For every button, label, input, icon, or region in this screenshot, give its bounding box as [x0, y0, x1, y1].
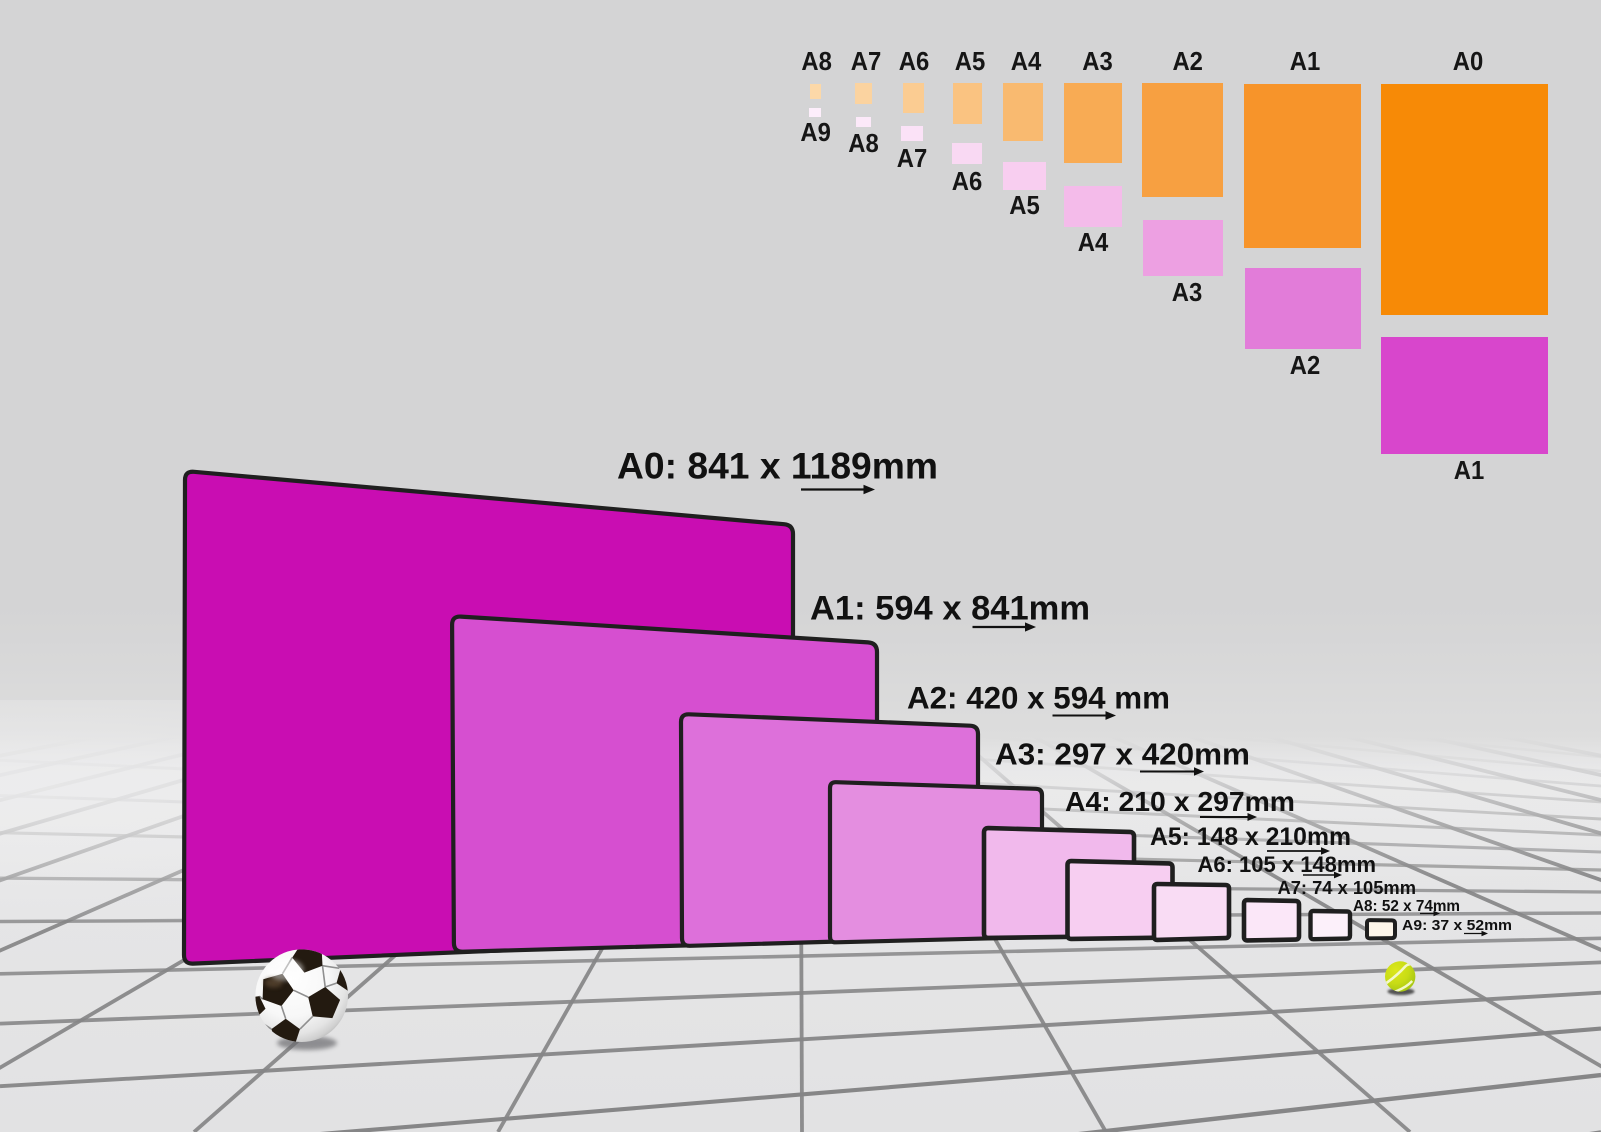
- svg-text:A8: A8: [801, 46, 832, 76]
- svg-text:A5: 148 x 210mm: A5: 148 x 210mm: [1150, 824, 1351, 851]
- svg-text:A3: A3: [1172, 277, 1203, 307]
- svg-text:A6: 105 x 148mm: A6: 105 x 148mm: [1198, 852, 1377, 877]
- svg-text:A4: 210 x 297mm: A4: 210 x 297mm: [1065, 785, 1295, 817]
- svg-text:A1: A1: [1290, 46, 1321, 76]
- svg-text:A3: 297 x 420mm: A3: 297 x 420mm: [995, 737, 1250, 772]
- svg-text:A7: A7: [897, 143, 928, 173]
- svg-text:A7: A7: [851, 46, 882, 76]
- svg-text:A9: A9: [800, 117, 831, 147]
- svg-text:A6: A6: [899, 46, 930, 76]
- svg-text:A2: 420 x 594 mm: A2: 420 x 594 mm: [907, 680, 1170, 716]
- svg-text:A7: 74 x 105mm: A7: 74 x 105mm: [1278, 877, 1417, 898]
- svg-text:A0: 841 x 1189mm: A0: 841 x 1189mm: [617, 445, 938, 487]
- svg-text:A8: A8: [848, 128, 879, 158]
- svg-text:A1: A1: [1454, 455, 1485, 485]
- svg-text:A4: A4: [1078, 227, 1109, 257]
- svg-text:A2: A2: [1172, 46, 1203, 76]
- svg-text:A1: 594 x 841mm: A1: 594 x 841mm: [810, 590, 1090, 628]
- svg-text:A2: A2: [1290, 350, 1321, 380]
- svg-text:A5: A5: [955, 46, 986, 76]
- svg-text:A3: A3: [1082, 46, 1113, 76]
- svg-text:A8: 52 x 74mm: A8: 52 x 74mm: [1353, 898, 1460, 915]
- svg-text:A0: A0: [1453, 46, 1484, 76]
- svg-text:A4: A4: [1011, 46, 1042, 76]
- svg-text:A9: 37 x 52mm: A9: 37 x 52mm: [1402, 917, 1512, 934]
- svg-text:A6: A6: [952, 166, 983, 196]
- svg-text:A5: A5: [1009, 190, 1040, 220]
